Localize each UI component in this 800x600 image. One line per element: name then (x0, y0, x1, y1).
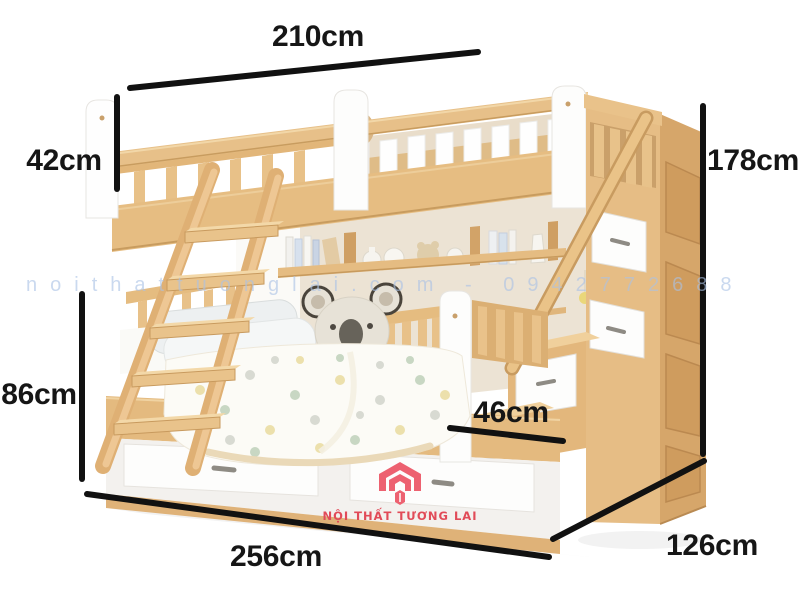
brand-logo-icon (375, 460, 425, 506)
watermark-text: noithattuonglai.com - 0942772688 (26, 274, 744, 297)
product-dimension-diagram: YD (0, 0, 800, 600)
brand-name: NỘI THẤT TƯƠNG LAI (320, 509, 480, 523)
dimension-line-upper-length (130, 52, 478, 88)
dimension-label-overall-length: 256cm (224, 541, 328, 573)
dimension-label-overall-height: 178cm (706, 145, 800, 177)
dimension-label-upper-length: 210cm (262, 21, 374, 53)
dimension-label-lower-height: 86cm (0, 379, 78, 411)
dimension-label-guard-height: 42cm (22, 145, 106, 177)
dimension-label-overall-depth: 126cm (660, 530, 764, 562)
dimension-label-step-depth: 46cm (470, 397, 552, 429)
brand-logo: NỘI THẤT TƯƠNG LAI (320, 460, 480, 523)
